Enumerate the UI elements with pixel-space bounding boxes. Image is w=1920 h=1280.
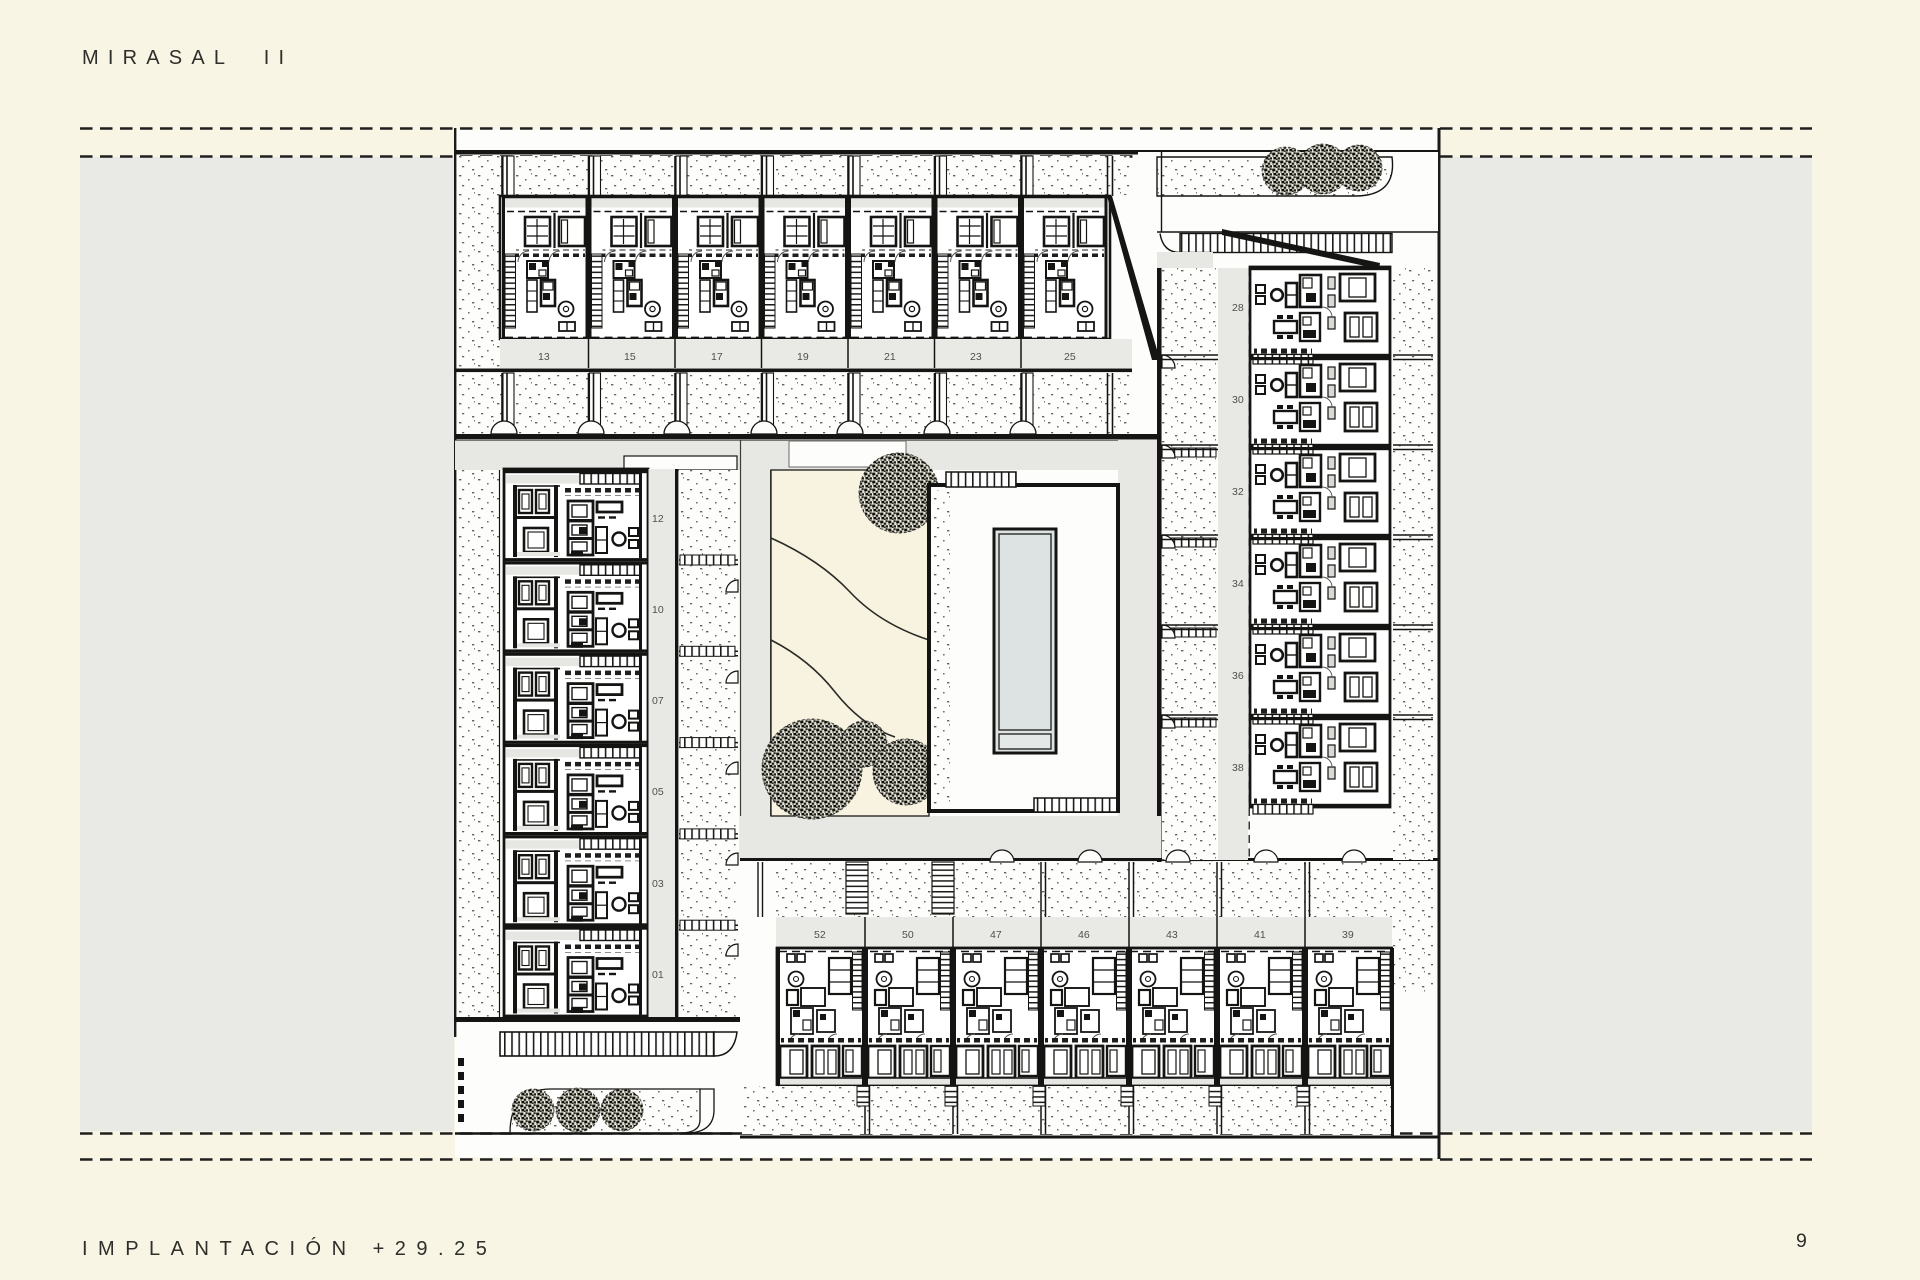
svg-text:15: 15 [624,351,636,363]
svg-text:05: 05 [652,786,664,798]
svg-text:17: 17 [711,351,723,363]
svg-text:39: 39 [1342,929,1354,941]
svg-text:13: 13 [538,351,550,363]
svg-text:43: 43 [1166,929,1178,941]
svg-text:25: 25 [1064,351,1076,363]
svg-text:IMPLANTACIÓN +29.25: IMPLANTACIÓN +29.25 [82,1237,497,1260]
svg-text:23: 23 [970,351,982,363]
svg-text:52: 52 [814,929,826,941]
svg-text:10: 10 [652,604,664,616]
svg-text:01: 01 [652,969,664,981]
svg-text:MIRASAL II: MIRASAL II [82,47,293,69]
svg-text:12: 12 [652,513,664,525]
svg-text:50: 50 [902,929,914,941]
svg-text:03: 03 [652,878,664,890]
svg-text:19: 19 [797,351,809,363]
svg-text:46: 46 [1078,929,1090,941]
svg-text:30: 30 [1232,394,1244,406]
svg-text:21: 21 [884,351,896,363]
svg-text:07: 07 [652,695,664,707]
svg-text:47: 47 [990,929,1002,941]
svg-text:28: 28 [1232,302,1244,314]
svg-text:34: 34 [1232,578,1244,590]
svg-text:38: 38 [1232,762,1244,774]
svg-text:32: 32 [1232,486,1244,498]
svg-text:36: 36 [1232,670,1244,682]
svg-text:41: 41 [1254,929,1266,941]
svg-text:9: 9 [1796,1230,1807,1252]
